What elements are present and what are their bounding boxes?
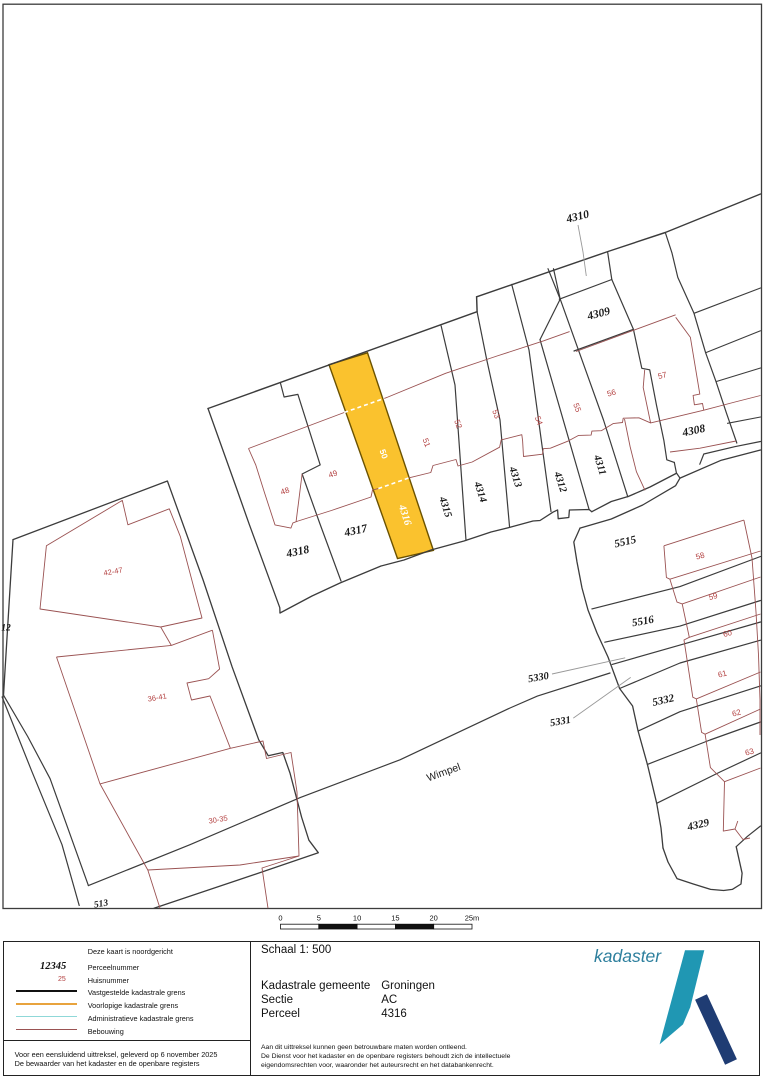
svg-text:42-47: 42-47	[103, 565, 123, 577]
svg-text:4309: 4309	[585, 305, 611, 323]
svg-text:4315: 4315	[436, 495, 453, 519]
svg-text:49: 49	[327, 468, 339, 479]
svg-text:36-41: 36-41	[147, 691, 167, 703]
svg-text:54: 54	[533, 415, 545, 427]
svg-text:25m: 25m	[465, 914, 480, 923]
svg-text:15: 15	[391, 914, 399, 923]
svg-text:58: 58	[695, 550, 706, 561]
svg-text:56: 56	[606, 387, 617, 398]
svg-text:5331: 5331	[549, 715, 572, 729]
svg-text:57: 57	[657, 370, 668, 381]
svg-text:Wimpel: Wimpel	[425, 761, 462, 784]
svg-text:10: 10	[353, 914, 361, 923]
svg-text:5332: 5332	[651, 692, 676, 709]
svg-text:12: 12	[1, 624, 11, 634]
svg-text:62: 62	[731, 707, 742, 718]
svg-text:4318: 4318	[284, 544, 310, 561]
svg-text:4329: 4329	[685, 817, 711, 834]
svg-text:4312: 4312	[551, 470, 568, 495]
svg-text:55: 55	[571, 402, 583, 414]
svg-text:51: 51	[421, 437, 433, 449]
svg-text:5516: 5516	[631, 614, 655, 630]
svg-text:4313: 4313	[506, 465, 523, 489]
svg-text:5: 5	[317, 914, 321, 923]
svg-text:4311: 4311	[591, 453, 608, 477]
svg-text:61: 61	[717, 668, 728, 679]
svg-text:5515: 5515	[613, 534, 638, 551]
svg-text:52: 52	[452, 418, 464, 430]
svg-text:4308: 4308	[680, 423, 706, 440]
svg-text:5330: 5330	[527, 671, 550, 686]
svg-text:20: 20	[430, 914, 438, 923]
svg-text:0: 0	[278, 914, 282, 923]
svg-text:4317: 4317	[342, 523, 369, 540]
svg-text:30-35: 30-35	[208, 813, 228, 825]
svg-text:48: 48	[279, 485, 291, 496]
svg-text:59: 59	[708, 591, 719, 602]
svg-text:4314: 4314	[471, 480, 488, 504]
svg-text:4310: 4310	[564, 208, 590, 226]
